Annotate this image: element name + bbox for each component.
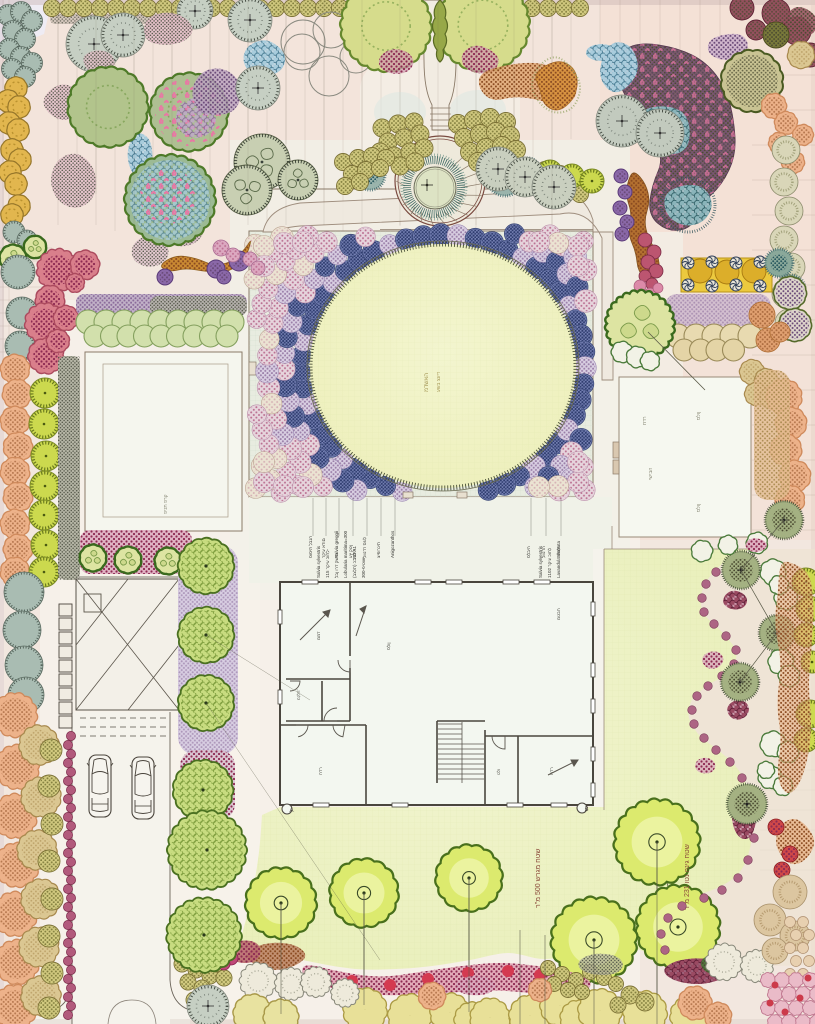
svg-text:ולט: ולט bbox=[496, 769, 501, 775]
svg-text:Salvia greggii: Salvia greggii bbox=[334, 531, 339, 558]
svg-text:A: A bbox=[290, 808, 294, 814]
svg-text:תינרופיצ: תינרופיצ bbox=[376, 542, 381, 558]
svg-text:לחוכ עיקר 1102: לחוכ עיקר 1102 bbox=[547, 547, 552, 578]
svg-text:Lavandula dentata: Lavandula dentata bbox=[556, 540, 561, 578]
svg-text:שטח גינה נטו 231 מ"ר: שטח גינה נטו 231 מ"ר bbox=[684, 844, 691, 910]
svg-text:ריעצ בשע: ריעצ בשע bbox=[436, 371, 442, 392]
svg-text:׳חלקמ: ׳חלקמ bbox=[297, 689, 301, 700]
svg-text:הנבל תיסוס: הנבל תיסוס bbox=[308, 536, 313, 558]
svg-text:הבישי: הבישי bbox=[648, 468, 654, 480]
svg-text:ןולס: ןולס bbox=[695, 412, 702, 420]
svg-text:ןולס: ןולס bbox=[386, 642, 391, 650]
svg-text:דממ: דממ bbox=[316, 631, 321, 640]
svg-text:ןולס: ןולס bbox=[695, 504, 702, 512]
svg-text:םודא עיקר: םודא עיקר bbox=[321, 538, 326, 558]
svg-text:לוגס רדנוול: לוגס רדנוול bbox=[362, 536, 367, 558]
svg-text:רדח: רדח bbox=[318, 767, 323, 775]
svg-text:חבטמ: חבטמ bbox=[556, 608, 561, 620]
svg-text:Anigozanthos: Anigozanthos bbox=[390, 530, 395, 558]
svg-text:ןטק ץע: ןטק ץע bbox=[348, 545, 353, 558]
svg-text:קרפ תניפ: קרפ תניפ bbox=[163, 494, 169, 514]
svg-text:B: B bbox=[585, 807, 589, 813]
svg-text:רדח: רדח bbox=[549, 767, 554, 775]
svg-text:הדנוול: הדנוול bbox=[541, 546, 546, 558]
svg-text:היבלס: היבלס bbox=[526, 546, 531, 558]
svg-text:רדח: רדח bbox=[642, 416, 648, 425]
svg-text:שטח מגרש 500 מ"ר: שטח מגרש 500 מ"ר bbox=[535, 849, 542, 908]
svg-text:שוטיפ-300: שוטיפ-300 bbox=[361, 557, 366, 578]
svg-text:ילגרוד: ילגרוד bbox=[556, 547, 561, 558]
svg-text:האשדמ: האשדמ bbox=[424, 373, 430, 392]
